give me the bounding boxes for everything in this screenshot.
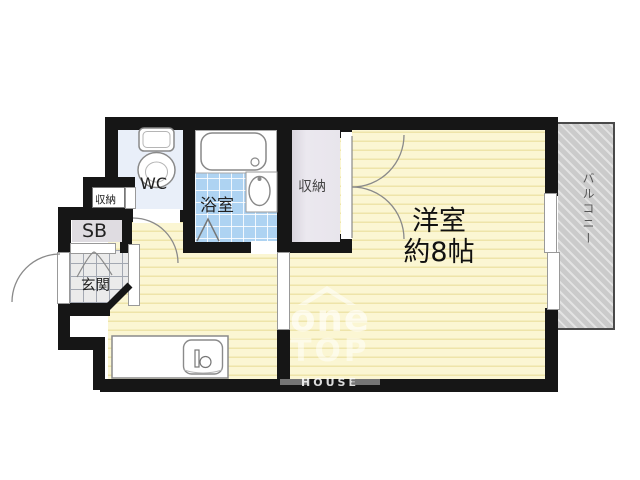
- bathroom-label: 浴室: [200, 191, 234, 216]
- western-room-name: 洋室: [383, 206, 495, 237]
- balcony-label: バルコニー: [580, 172, 597, 312]
- wc-label: WC: [140, 174, 167, 193]
- floorplan-canvas: WC 浴室 収納 SB 玄関 収納 洋室 約8帖 バルコニー one TOP H…: [0, 0, 640, 480]
- shoe-box-label: SB: [82, 220, 107, 242]
- wc-door-swing: [133, 218, 178, 263]
- storage-small-label: 収納: [95, 192, 116, 207]
- western-room-label: 洋室 約8帖: [383, 206, 495, 268]
- storage-main-label: 収納: [298, 176, 326, 196]
- bath-folding-door-icon: [197, 219, 219, 241]
- western-room-size: 約8帖: [383, 237, 495, 268]
- closet-door-swing-upper: [352, 135, 404, 187]
- bathtub-icon: [201, 133, 266, 170]
- entrance-label: 玄関: [81, 274, 110, 295]
- entrance-door-swing: [12, 254, 60, 302]
